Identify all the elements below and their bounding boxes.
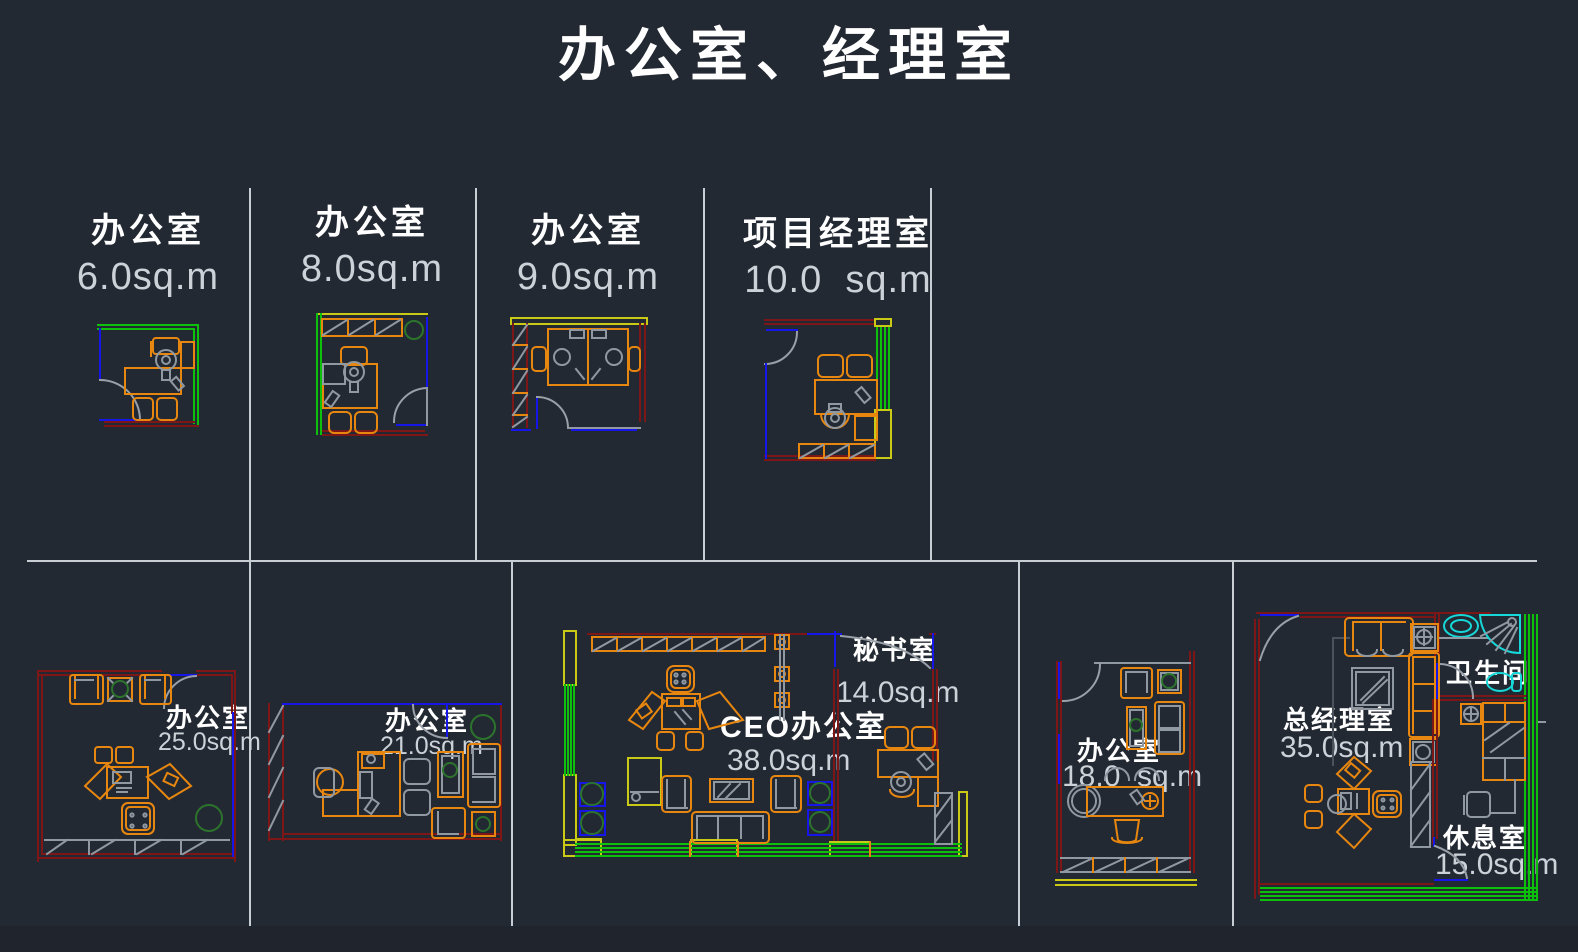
room-area: 9.0sq.m [517,256,659,299]
room-name: 办公室 [517,203,659,252]
room-label-pm-office-10: 项目经理室 10.0 sq.m [743,206,933,302]
room-area: 8.0sq.m [301,248,443,291]
room-area: 10.0 sq.m [743,259,933,302]
floorplan-office-6sqm [95,322,201,430]
room-label-office-9: 办公室 9.0sq.m [517,203,659,299]
grid-divider [511,562,513,926]
room-area: 6.0sq.m [77,256,219,299]
grid-divider [1018,562,1020,926]
floorplan-pm-office-10sqm [763,318,892,462]
floorplan-office-9sqm [510,317,648,433]
floorplan-office-18sqm [1055,650,1197,890]
room-name: 办公室 [77,203,219,252]
floorplan-gm-suite [1253,608,1543,904]
canvas-bottom-band [0,926,1578,952]
grid-divider [249,188,251,561]
room-name: 办公室 [301,195,443,244]
room-label-office-6: 办公室 6.0sq.m [77,203,219,299]
page-title: 办公室、经理室 [0,8,1578,92]
floorplan-office-25sqm [37,668,237,865]
grid-divider [475,188,477,561]
grid-divider [27,560,1537,562]
floorplan-office-8sqm [315,310,430,437]
floorplan-ceo-and-secretary [563,630,968,858]
grid-divider [1232,562,1234,926]
room-label-office-8: 办公室 8.0sq.m [301,195,443,291]
room-name: 项目经理室 [743,206,933,255]
grid-divider [703,188,705,561]
drawing-canvas[interactable]: 办公室、经理室 办公室 6.0sq.m 办公室 8.0sq.m 办公室 9.0s… [0,0,1578,952]
floorplan-office-21sqm [268,702,503,842]
